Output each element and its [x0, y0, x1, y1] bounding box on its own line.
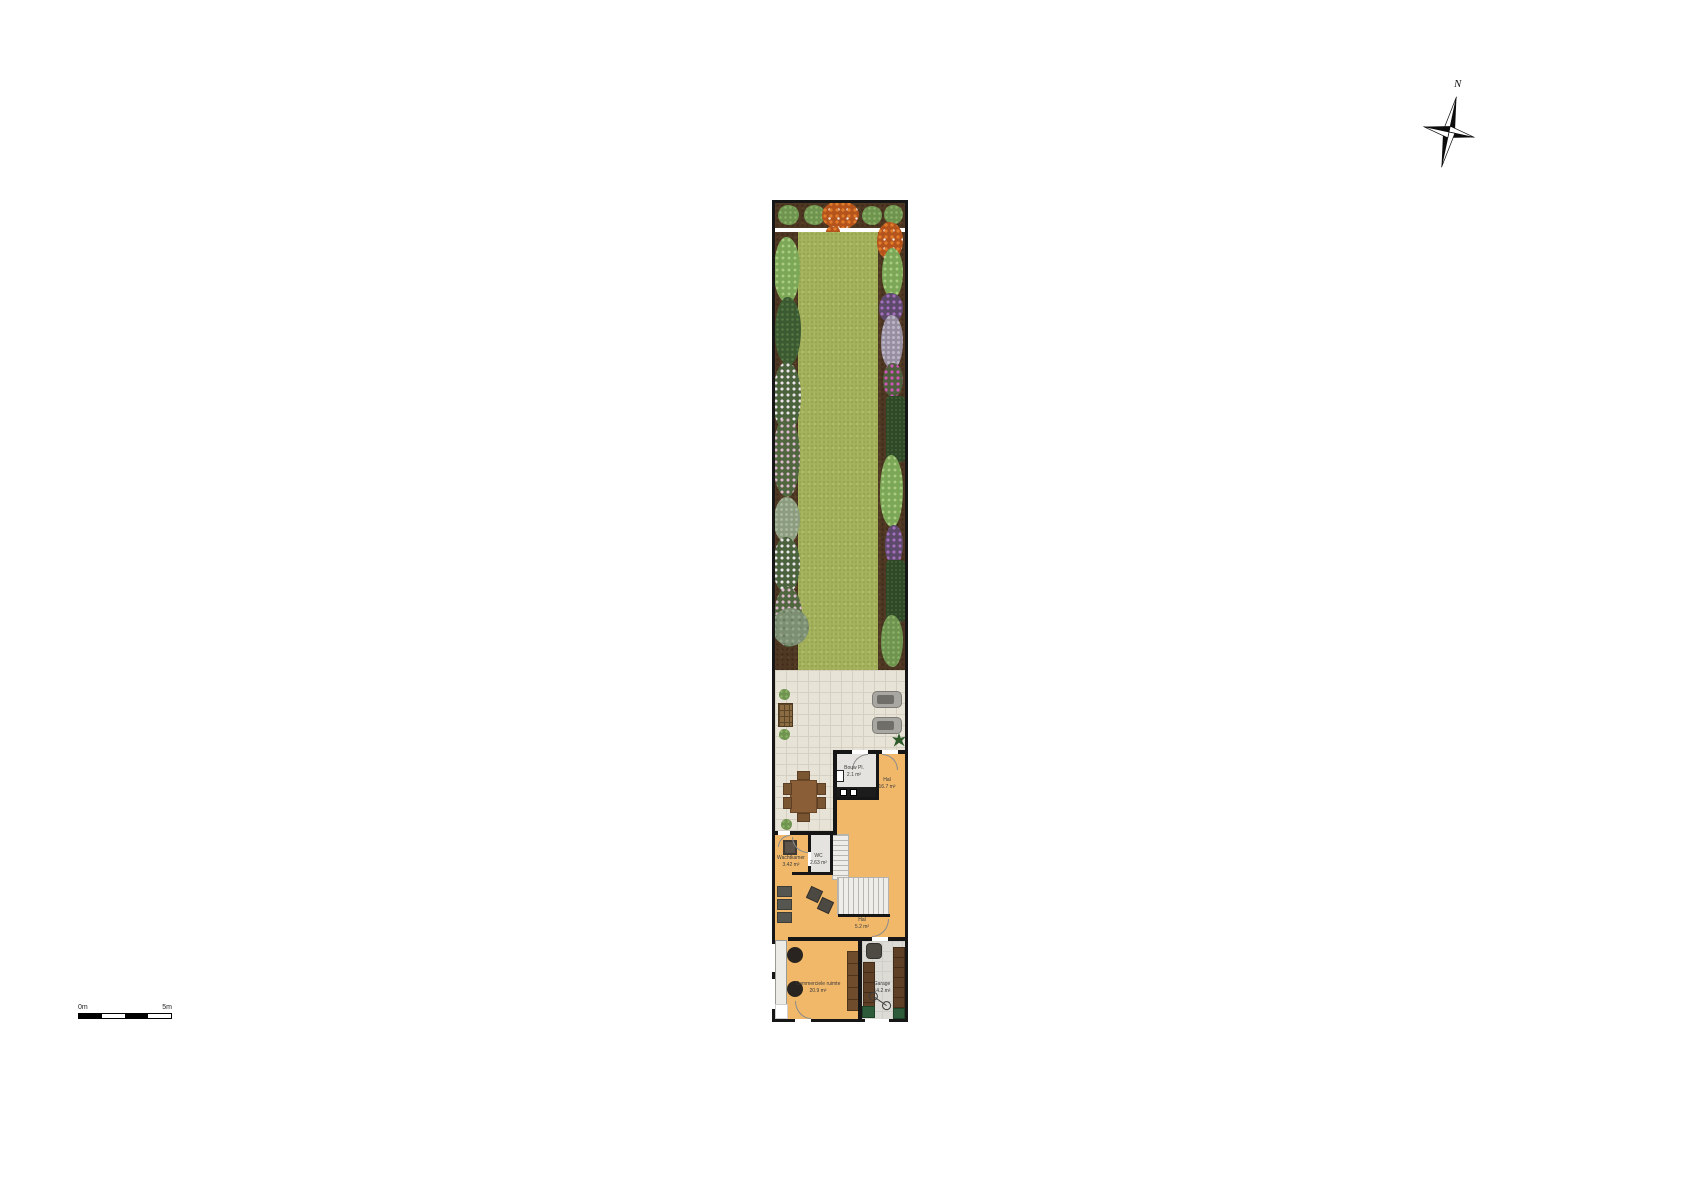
desk	[777, 912, 792, 923]
room-area: 2.63 m²	[805, 860, 832, 867]
room-area: 16.7 m²	[868, 784, 906, 791]
hedge-icon	[886, 396, 905, 462]
compass-rose-icon	[1412, 78, 1488, 174]
shrub-icon	[882, 248, 903, 298]
stove	[840, 789, 847, 796]
chair	[783, 797, 792, 809]
interior-wall	[833, 797, 879, 800]
door-opening	[872, 937, 888, 941]
interior-wall	[792, 872, 833, 875]
flower-bush-icon	[885, 525, 903, 565]
stairs	[833, 835, 848, 879]
house-wall	[833, 750, 837, 835]
shrub-icon	[881, 615, 903, 667]
potted-plant-icon	[779, 729, 790, 740]
entrance-mat	[775, 1004, 788, 1019]
desk	[777, 886, 792, 897]
room-label-wc: WC 2.63 m²	[805, 853, 832, 866]
lawn	[798, 232, 878, 670]
window	[772, 944, 775, 972]
garage-door-opening	[865, 1019, 889, 1022]
room-label-wachtkamer: Wachtkamer 3.42 m²	[773, 855, 809, 868]
scale-start-label: 0m	[78, 1004, 88, 1011]
north-label: N	[1454, 78, 1461, 90]
tree-icon	[772, 608, 809, 646]
interior-wall	[858, 941, 862, 1019]
plot-boundary-wall	[772, 200, 775, 1022]
desk	[777, 899, 792, 910]
flower-bush-icon	[773, 537, 800, 593]
shrub-icon	[881, 315, 903, 369]
chair	[797, 771, 810, 780]
scale-bar: 0m 5m	[78, 1004, 172, 1019]
floor-plan-plot: Bouw Pl. 2.1 m² Hal 16.7 m² Wachtkamer 3…	[772, 200, 908, 1022]
flower-bush-icon	[773, 417, 800, 497]
plot-boundary-wall	[772, 200, 908, 203]
shrub-icon	[778, 205, 799, 225]
stairs	[838, 878, 888, 914]
room-label-garage: Garage 14.2 m²	[861, 981, 903, 994]
potted-plant-icon	[779, 689, 790, 700]
shrub-icon	[862, 206, 882, 225]
shrub-icon	[880, 455, 903, 527]
chair	[797, 813, 810, 822]
room-area: 20.9 m²	[785, 988, 851, 995]
shrub-icon	[774, 237, 800, 303]
shelving	[893, 947, 905, 1009]
hedge-icon	[886, 560, 905, 622]
room-area: 14.2 m²	[861, 988, 903, 995]
dining-table	[790, 780, 817, 813]
orange-flower-bush-icon	[822, 201, 859, 229]
sun-lounger	[872, 717, 902, 734]
storage-box	[893, 1008, 905, 1019]
reception-counter	[775, 940, 787, 1014]
scale-end-label: 5m	[162, 1004, 172, 1011]
scale-bar-segments	[78, 1013, 172, 1019]
motorcycle	[866, 943, 882, 959]
chair	[783, 783, 792, 795]
patio-terrace	[775, 670, 905, 753]
flower-bush-icon	[883, 363, 903, 397]
compass-rose: N	[1412, 78, 1488, 174]
room-label-hal: Hal 16.7 m²	[868, 777, 906, 790]
potted-plant-icon	[781, 819, 792, 830]
entrance-door-opening	[795, 1019, 811, 1022]
room-area: 3.42 m²	[773, 862, 809, 869]
sideboard	[778, 703, 793, 727]
room-name: Wachtkamer	[773, 855, 809, 862]
room-area: 5.2 m²	[844, 924, 880, 931]
room-label-hal-2: Hal 5.2 m²	[844, 917, 880, 930]
plot-boundary-wall	[905, 200, 908, 1022]
sun-lounger	[872, 691, 902, 708]
office-chair	[787, 947, 803, 963]
shrub-icon	[775, 297, 801, 365]
chair	[817, 783, 826, 795]
sink	[850, 789, 857, 796]
chair	[817, 797, 826, 809]
room-label-commerciele-ruimte: Commerciele ruimte 20.9 m²	[785, 981, 851, 994]
